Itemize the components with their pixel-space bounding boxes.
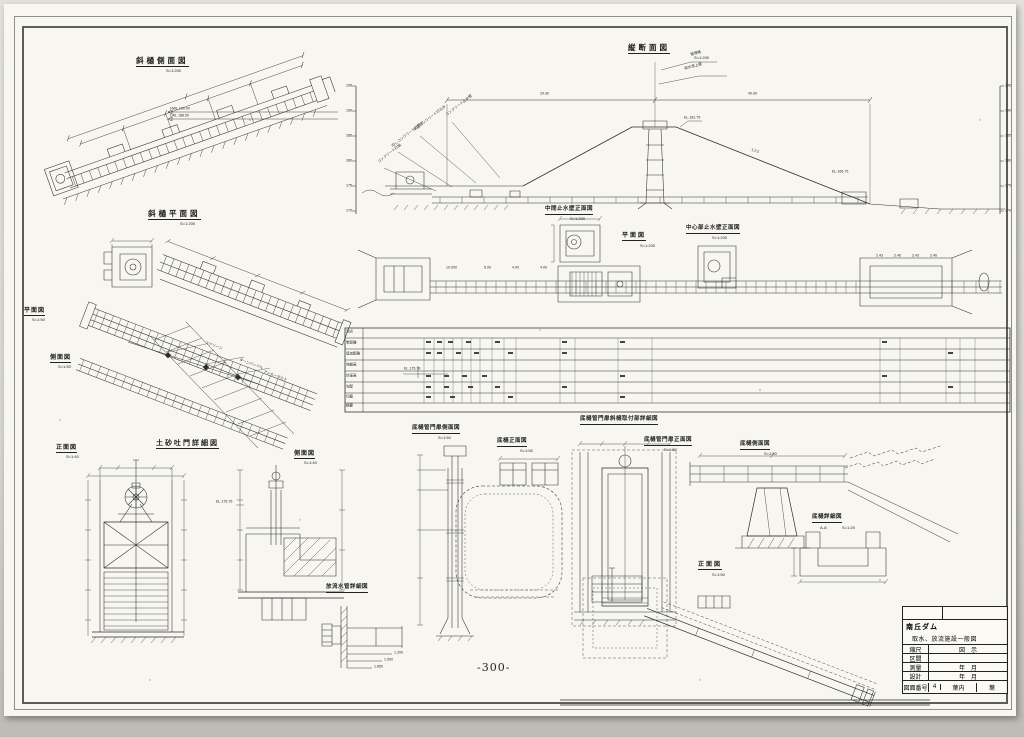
scale-mid-cutoff: S=1:200 bbox=[570, 217, 585, 221]
title-gate-attach: 底樋管門扉斜樋取付部詳細図 bbox=[580, 417, 658, 425]
title-front-bottom: 正面図 bbox=[698, 562, 722, 570]
scale-incline-side: S=1:200 bbox=[166, 69, 181, 73]
title-conduit-gate-side: 底樋管門扉側面図 bbox=[412, 426, 460, 434]
scale-conduit-front: S=1:50 bbox=[520, 449, 533, 453]
title-center-cutoff: 中心部止水壁正面図 bbox=[686, 226, 740, 234]
drawing-number-label: 図面番号 bbox=[903, 683, 929, 692]
table-row-label-4: 地盤高 bbox=[346, 363, 357, 367]
conduit-detail-linework bbox=[791, 532, 888, 584]
title-discharge-detail: 放流水管詳細図 bbox=[326, 585, 368, 593]
table-row-label-2: 単距離 bbox=[346, 341, 357, 345]
elev-left-180: 180 bbox=[343, 159, 352, 163]
drawing-linework bbox=[0, 0, 1024, 737]
scale-incline-plan: S=1:200 bbox=[180, 222, 195, 226]
elev-right-195: 195 bbox=[1005, 84, 1011, 88]
dim-40-99: 40.99 bbox=[748, 92, 757, 96]
plan-dim-r4: 2.46 bbox=[930, 254, 937, 258]
title-block-section-row: 区間 bbox=[903, 654, 1007, 663]
plan-dim-r1: 2.43 bbox=[876, 254, 883, 258]
title-incline-plan: 斜樋平面図 bbox=[148, 210, 201, 220]
title-block: 南丘ダム 取水、放流施設一般図 縮尺 図 示 区間 測量 年 月 設計 年 月 … bbox=[902, 606, 1008, 694]
section-row-value bbox=[929, 654, 1007, 662]
elev-right-170: 170 bbox=[1005, 209, 1011, 213]
scale-row-value: 図 示 bbox=[929, 645, 1007, 653]
label-lwl: LWL 188.50 bbox=[170, 114, 189, 118]
scale-row-label: 縮尺 bbox=[903, 645, 929, 653]
sheets-label: 葉内 bbox=[941, 683, 977, 692]
title-plan-center: 平面図 bbox=[622, 233, 646, 241]
table-row-label-3: 追加距離 bbox=[346, 352, 360, 356]
title-sand-gate-front: 正面図 bbox=[56, 445, 77, 453]
table-note-el: EL.175.76 bbox=[404, 367, 420, 371]
title-plan-small: 平面図 bbox=[24, 308, 45, 316]
scale-plan-small: S=1:50 bbox=[32, 318, 45, 322]
title-block-top-row bbox=[903, 607, 1007, 620]
front-bottom-linework bbox=[560, 568, 930, 707]
profile-table-linework bbox=[345, 328, 1010, 412]
scale-conduit-gate-front: S=1:50 bbox=[664, 448, 677, 452]
title-block-scale-row: 縮尺 図 示 bbox=[903, 645, 1007, 654]
elev-left-190: 190 bbox=[343, 109, 352, 113]
table-row-label-1: 測点 bbox=[346, 330, 353, 334]
plan-dim-2: 5.00 bbox=[484, 266, 491, 270]
table-row-label-5: 計画高 bbox=[346, 374, 357, 378]
scale-front-bottom: S=1:50 bbox=[712, 573, 725, 577]
plan-dim-r3: 2.43 bbox=[912, 254, 919, 258]
table-row-label-6: 勾配 bbox=[346, 385, 353, 389]
title-block-top-cell-1 bbox=[903, 607, 943, 619]
title-block-top-cell-2 bbox=[943, 607, 1007, 619]
title-incline-side: 斜樋側面図 bbox=[136, 57, 189, 67]
elev-left-185: 185 bbox=[343, 134, 352, 138]
incline-plan-linework bbox=[104, 238, 356, 448]
scale-plan-center: S=1:200 bbox=[640, 244, 655, 248]
scale-conduit-gate-side: S=1:50 bbox=[438, 436, 451, 440]
title-conduit-detail: 底樋詳細図 bbox=[812, 515, 842, 523]
elev-right-175: 175 bbox=[1005, 184, 1011, 188]
plan-dim-1: 10.000 bbox=[446, 266, 457, 270]
drawing-title: 取水、放流施設一般図 bbox=[912, 634, 1004, 643]
title-mid-cutoff: 中間止水壁正面図 bbox=[545, 207, 593, 215]
plan-dim-3: 4.00 bbox=[512, 266, 519, 270]
page-number: -300- bbox=[477, 662, 510, 673]
label-slope-el: EL.166.75 bbox=[832, 170, 848, 174]
conduit-front-linework bbox=[456, 456, 562, 598]
scale-sand-gate-front: S=1:40 bbox=[66, 455, 79, 459]
elev-left-170: 170 bbox=[343, 209, 352, 213]
title-block-survey-row: 測量 年 月 bbox=[903, 663, 1007, 672]
elev-left-175: 175 bbox=[343, 184, 352, 188]
scale-conduit-detail: S=1:20 bbox=[842, 526, 855, 530]
scale-profile: S=1:200 bbox=[694, 56, 709, 60]
scale-conduit-side: S=1:50 bbox=[764, 452, 777, 456]
title-conduit-gate-front: 底樋管門扉正面図 bbox=[644, 438, 692, 446]
title-block-design-row: 設計 年 月 bbox=[903, 672, 1007, 681]
table-row-label-8: 摘要 bbox=[346, 404, 353, 408]
title-conduit-front: 底樋正面図 bbox=[497, 439, 527, 447]
scale-sand-gate-side: S=1:40 bbox=[304, 461, 317, 465]
discharge-dim-1: 1.200 bbox=[394, 651, 403, 655]
elev-right-185: 185 bbox=[1005, 134, 1011, 138]
table-row-label-7: 切盛 bbox=[346, 395, 353, 399]
gate-attach-linework bbox=[572, 441, 676, 626]
scale-center-cutoff: S=1:200 bbox=[712, 236, 727, 240]
drawing-number-value: 4 bbox=[929, 684, 941, 690]
survey-row-value: 年 月 bbox=[929, 663, 1007, 671]
scan-speckles bbox=[59, 119, 980, 681]
label-conduit-detail-section: A-A' bbox=[820, 526, 827, 530]
label-hwl: HWL 190.00 bbox=[170, 107, 190, 111]
title-sand-gate-side: 側面図 bbox=[294, 451, 315, 459]
scale-side-small: S=1:50 bbox=[58, 365, 71, 369]
plan-dim-r2: 2.46 bbox=[894, 254, 901, 258]
design-row-value: 年 月 bbox=[929, 672, 1007, 680]
design-row-label: 設計 bbox=[903, 672, 929, 680]
survey-row-label: 測量 bbox=[903, 663, 929, 671]
elev-left-195: 195 bbox=[343, 84, 352, 88]
project-name: 南丘ダム bbox=[906, 622, 1004, 632]
title-side-small: 側面図 bbox=[50, 355, 71, 363]
conduit-gate-side-linework bbox=[417, 446, 474, 641]
conduit-side-linework bbox=[690, 446, 958, 548]
label-crest-el: EL.181.75 bbox=[684, 116, 700, 120]
title-block-number-row: 図面番号 4 葉内 葉 bbox=[903, 681, 1007, 693]
discharge-dim-3: 1.850 bbox=[374, 665, 383, 669]
section-row-label: 区間 bbox=[903, 654, 929, 662]
plan-dim-4: 4.00 bbox=[540, 266, 547, 270]
title-conduit-side: 底樋側面図 bbox=[740, 442, 770, 450]
sand-gate-linework bbox=[85, 460, 345, 643]
label-sand-gate-el: EL.175.76 bbox=[216, 500, 232, 504]
dim-29-30: 29.30 bbox=[540, 92, 549, 96]
title-sand-gate: 土砂吐門詳細図 bbox=[156, 440, 219, 449]
sheets-value: 葉 bbox=[977, 683, 1007, 692]
discharge-dim-2: 1.500 bbox=[384, 658, 393, 662]
scanned-drawing-canvas: 斜樋側面図 S=1:200 HWL 190.00 LWL 188.50 縦断面図… bbox=[0, 0, 1024, 737]
profile-linework bbox=[352, 62, 1005, 214]
title-profile: 縦断面図 bbox=[628, 44, 670, 54]
incline-side-linework bbox=[36, 47, 340, 207]
title-block-title-cell: 南丘ダム 取水、放流施設一般図 bbox=[903, 620, 1007, 645]
elev-right-180: 180 bbox=[1005, 159, 1011, 163]
elev-right-190: 190 bbox=[1005, 109, 1011, 113]
